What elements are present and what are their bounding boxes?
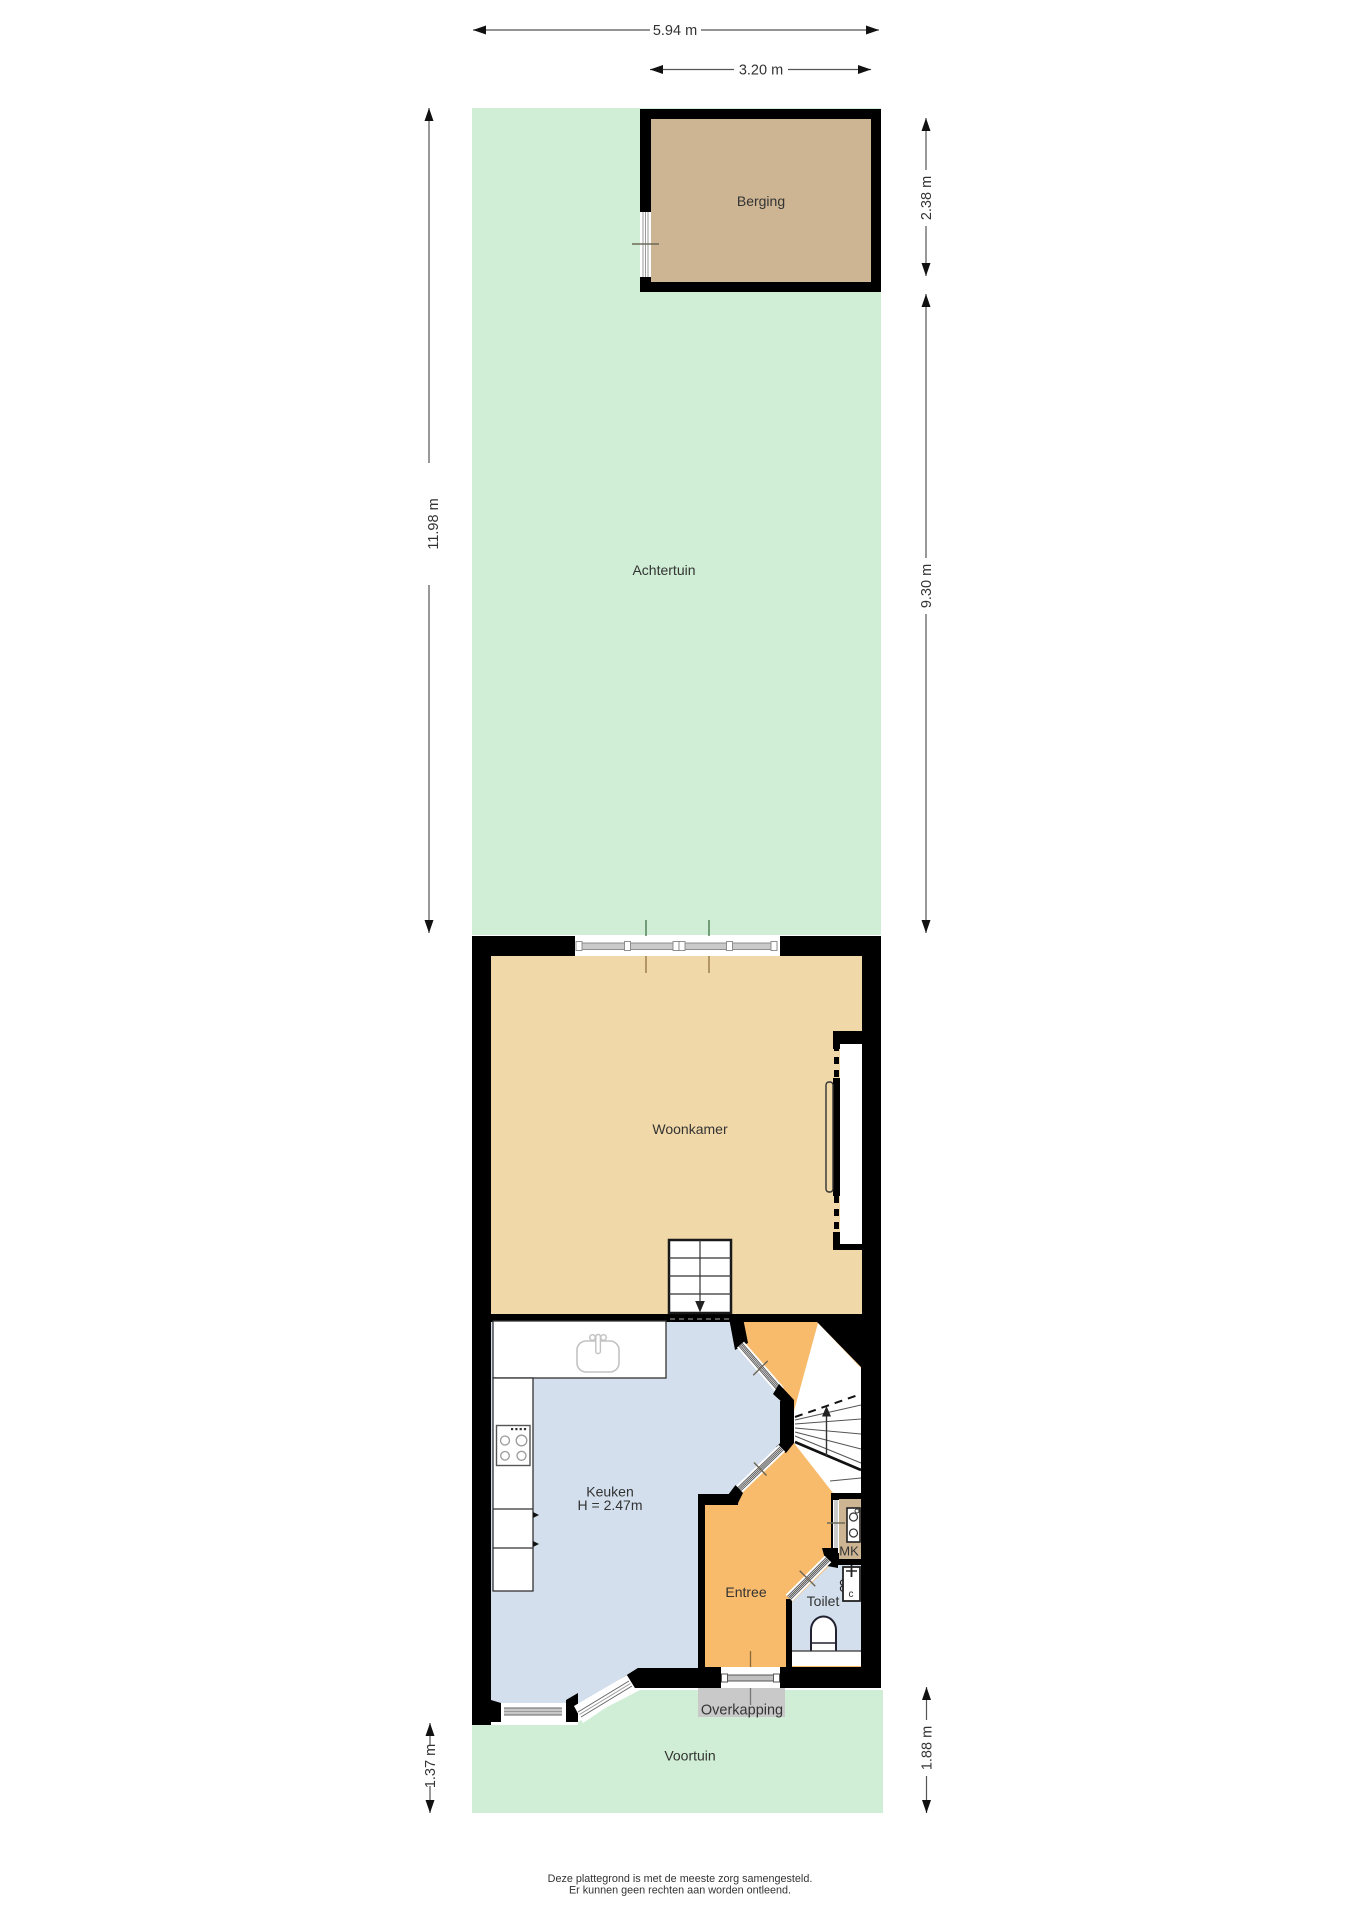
svg-text:Overkapping: Overkapping [701, 1703, 783, 1719]
svg-text:Voortuin: Voortuin [664, 1748, 715, 1764]
svg-text:Er kunnen geen rechten aan wor: Er kunnen geen rechten aan worden ontlee… [569, 1885, 791, 1897]
svg-text:Achtertuin: Achtertuin [632, 562, 695, 578]
svg-text:1.88 m: 1.88 m [920, 1726, 936, 1770]
svg-text:Woonkamer: Woonkamer [652, 1121, 728, 1137]
svg-text:2.38 m: 2.38 m [919, 176, 935, 220]
svg-text:9.30 m: 9.30 m [919, 564, 935, 608]
svg-text:Deze plattegrond is met de mee: Deze plattegrond is met de meeste zorg s… [548, 1873, 813, 1885]
svg-text:1.37 m: 1.37 m [423, 1744, 439, 1788]
svg-text:MK: MK [839, 1544, 859, 1559]
svg-text:11.98 m: 11.98 m [426, 498, 442, 549]
svg-text:3.20 m: 3.20 m [739, 63, 783, 79]
svg-text:Toilet: Toilet [807, 1593, 840, 1609]
svg-text:c: c [849, 1589, 854, 1600]
svg-text:5.94 m: 5.94 m [653, 23, 697, 39]
svg-text:Berging: Berging [737, 193, 785, 209]
svg-text:Entree: Entree [725, 1584, 766, 1600]
svg-text:H = 2.47m: H = 2.47m [578, 1497, 643, 1513]
